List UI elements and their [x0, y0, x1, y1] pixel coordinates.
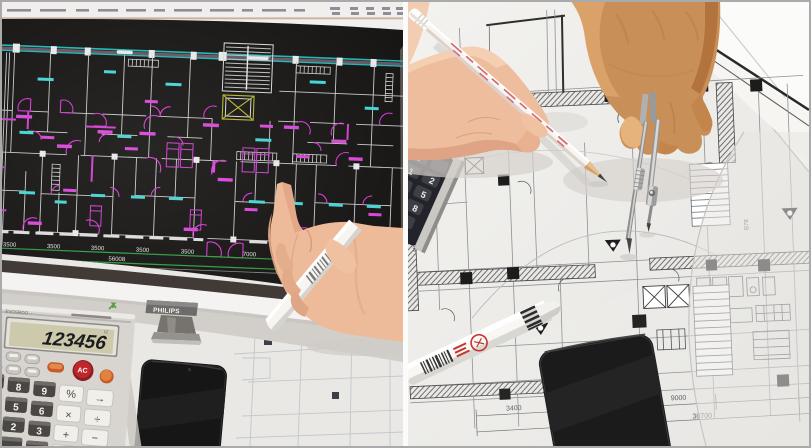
svg-text:.: .: [9, 442, 13, 446]
svg-text:AC: AC: [77, 367, 88, 375]
svg-text:+: +: [62, 429, 69, 441]
svg-text:PHILIPS: PHILIPS: [153, 307, 180, 315]
svg-text:×: ×: [65, 409, 72, 421]
svg-text:%: %: [66, 388, 77, 401]
svg-text:−: −: [91, 432, 98, 444]
svg-text:→: →: [94, 393, 106, 406]
svg-text:÷: ÷: [94, 414, 101, 426]
